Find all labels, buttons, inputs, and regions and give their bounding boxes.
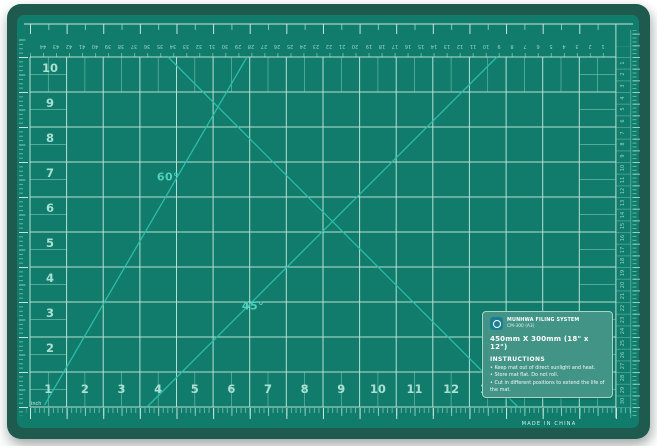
instructions-title: INSTRUCTIONS — [490, 356, 605, 363]
logo-emblem-icon — [493, 320, 501, 328]
instruction-item: Keep mat out of direct sunlight and heat… — [490, 365, 605, 372]
label-header: MUNHWA FILING SYSTEM CM-300 (A3) — [490, 317, 605, 330]
brand-model: CM-300 (A3) — [507, 324, 579, 329]
inch-unit-label: inch — [31, 401, 41, 407]
angle-label-45: 45° — [242, 300, 264, 313]
instruction-item: Cut in different positions to extend the… — [490, 380, 605, 395]
made-in-text: MADE IN CHINA — [522, 421, 577, 427]
photo-canvas: 4443424140393837363534333231302928272625… — [0, 0, 657, 446]
brand-logo-icon — [490, 317, 503, 330]
instructions-list: Keep mat out of direct sunlight and heat… — [490, 365, 605, 394]
size-text: 450mm X 300mm (18" x 12") — [490, 335, 605, 351]
brand-name: MUNHWA FILING SYSTEM — [507, 318, 579, 323]
angle-label-60: 60° — [157, 171, 179, 184]
brand-block: MUNHWA FILING SYSTEM CM-300 (A3) — [507, 318, 579, 329]
product-label: MUNHWA FILING SYSTEM CM-300 (A3) 450mm X… — [482, 311, 613, 398]
instruction-item: Store mat flat. Do not roll. — [490, 372, 605, 379]
